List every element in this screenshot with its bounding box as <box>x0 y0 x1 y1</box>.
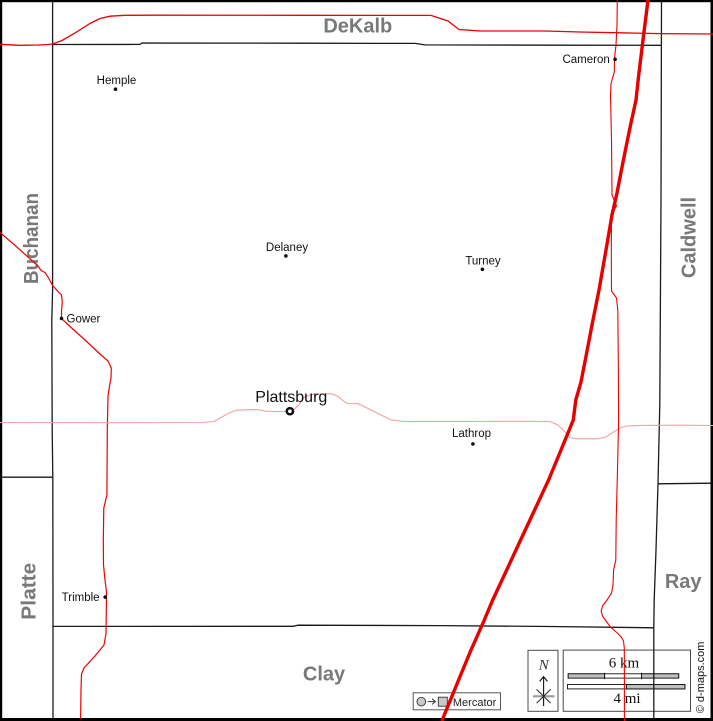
svg-text:Delaney: Delaney <box>266 242 308 254</box>
svg-text:Plattsburg: Plattsburg <box>255 389 327 406</box>
svg-text:Clay: Clay <box>303 664 346 686</box>
svg-text:Mercator: Mercator <box>453 697 497 709</box>
svg-text:Turney: Turney <box>465 256 501 268</box>
svg-text:Buchanan: Buchanan <box>21 193 43 284</box>
svg-text:N: N <box>538 658 550 674</box>
svg-text:Platte: Platte <box>19 563 41 620</box>
svg-text:4 mi: 4 mi <box>613 691 640 707</box>
svg-text:Gower: Gower <box>67 313 101 325</box>
svg-text:© d-maps.com: © d-maps.com <box>695 642 707 714</box>
svg-text:Lathrop: Lathrop <box>452 428 491 440</box>
svg-text:Trimble: Trimble <box>62 592 100 604</box>
svg-text:Ray: Ray <box>665 571 703 593</box>
svg-text:Hemple: Hemple <box>97 75 137 87</box>
svg-text:Cameron: Cameron <box>562 54 609 66</box>
svg-text:DeKalb: DeKalb <box>323 15 392 37</box>
svg-text:Caldwell: Caldwell <box>679 197 701 278</box>
